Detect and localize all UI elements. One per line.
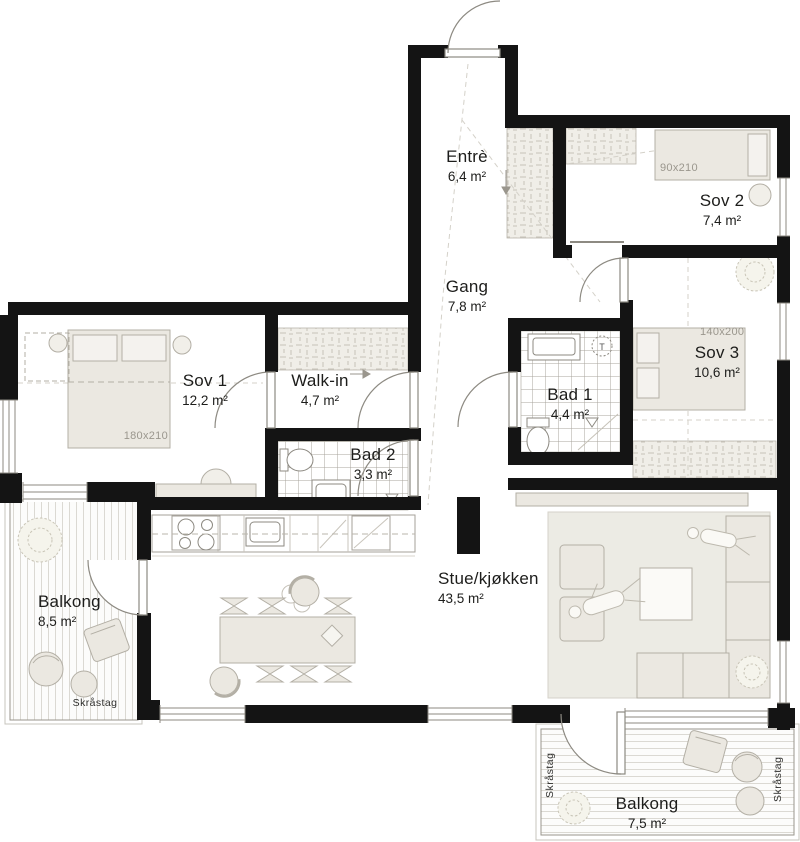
skrastag-note-balkong1: Skråstag: [55, 697, 135, 709]
toilet: [527, 427, 549, 455]
walkin-closet: [278, 328, 408, 370]
room-label-stue: Stue/kjøkken 43,5 m²: [438, 568, 588, 608]
bed-dimension-sov2: 90x210: [660, 162, 698, 174]
floorplan-drawing: T: [0, 0, 800, 842]
stool: [49, 334, 67, 352]
room-area: 7,4 m²: [662, 212, 782, 230]
kitchen-counter: [152, 515, 415, 556]
pouf: [732, 752, 762, 782]
chair: [201, 469, 231, 484]
chair: [259, 598, 285, 614]
skrastag-note-balkong2-right: Skråstag: [772, 746, 784, 802]
room-area: 3,3 m²: [318, 466, 428, 484]
room-area: 10,6 m²: [662, 364, 772, 382]
skrastag-note-balkong2-left: Skråstag: [544, 742, 556, 798]
chair: [257, 666, 283, 682]
sideboard: [516, 493, 748, 506]
window: [23, 482, 87, 502]
washer-symbol-label: T: [599, 342, 605, 352]
room-label-walkin: Walk-in 4,7 m²: [265, 370, 375, 410]
sofa-chaise: [726, 516, 770, 582]
bed-dimension-sov1: 180x210: [110, 430, 168, 442]
room-name: Entrè: [412, 146, 522, 168]
room-label-sov3: Sov 3 10,6 m²: [662, 342, 772, 382]
room-name: Bad 2: [318, 444, 428, 466]
window: [160, 705, 245, 723]
sliding-door-sov2: [570, 242, 624, 258]
window: [0, 400, 18, 473]
room-area: 12,2 m²: [150, 392, 260, 410]
room-area: 6,4 m²: [412, 168, 522, 186]
floor-plan: T Entrè 6,4 m² Sov 2 7,4 m² Gang 7,8 m² …: [0, 0, 800, 842]
room-area: 4,7 m²: [265, 392, 375, 410]
pillow: [637, 368, 659, 398]
room-label-balkong1: Balkong 8,5 m²: [38, 591, 138, 631]
toilet: [287, 449, 313, 471]
window: [777, 303, 790, 360]
sofa-module: [726, 582, 770, 640]
dining-set: [205, 571, 355, 701]
room-label-bad1: Bad 1 4,4 m²: [515, 384, 625, 424]
pouf: [71, 671, 97, 697]
chair: [205, 662, 244, 702]
room-area: 8,5 m²: [38, 613, 138, 631]
chair: [325, 666, 351, 682]
room-label-balkong2: Balkong 7,5 m²: [592, 793, 702, 833]
room-name: Bad 1: [515, 384, 625, 406]
room-name: Sov 3: [662, 342, 772, 364]
room-label-gang: Gang 7,8 m²: [412, 276, 522, 316]
window: [625, 708, 768, 726]
room-area: 43,5 m²: [438, 590, 588, 608]
pouf: [29, 652, 63, 686]
room-name: Stue/kjøkken: [438, 568, 588, 590]
entry-door: [445, 1, 500, 57]
chair: [291, 666, 317, 682]
room-label-entre: Entrè 6,4 m²: [412, 146, 522, 186]
room-name: Walk-in: [265, 370, 375, 392]
room-area: 4,4 m²: [515, 406, 625, 424]
room-label-sov1: Sov 1 12,2 m²: [150, 370, 260, 410]
sov3-door: [580, 258, 628, 302]
window: [428, 705, 512, 723]
room-name: Sov 1: [150, 370, 260, 392]
sov2-closet: [566, 128, 636, 164]
room-name: Sov 2: [662, 190, 782, 212]
pillow: [748, 134, 767, 176]
room-label-sov2: Sov 2 7,4 m²: [662, 190, 782, 230]
chair: [325, 598, 351, 614]
room-name: Balkong: [38, 591, 138, 613]
sov3-closet: [633, 441, 776, 478]
chair: [285, 571, 324, 611]
room-name: Balkong: [592, 793, 702, 815]
bed-dimension-sov3: 140x200: [700, 326, 744, 338]
room-area: 7,5 m²: [592, 815, 702, 833]
coffee-table: [640, 568, 692, 620]
bad1-door: [458, 372, 517, 427]
sov1-furniture: [25, 330, 256, 508]
pillow: [637, 333, 659, 363]
window: [777, 641, 790, 703]
stool: [173, 336, 191, 354]
room-area: 7,8 m²: [412, 298, 522, 316]
pillow: [73, 335, 117, 361]
room-name: Gang: [412, 276, 522, 298]
chair: [221, 598, 247, 614]
pouf: [736, 787, 764, 815]
pillow: [122, 335, 166, 361]
room-label-bad2: Bad 2 3,3 m²: [318, 444, 428, 484]
